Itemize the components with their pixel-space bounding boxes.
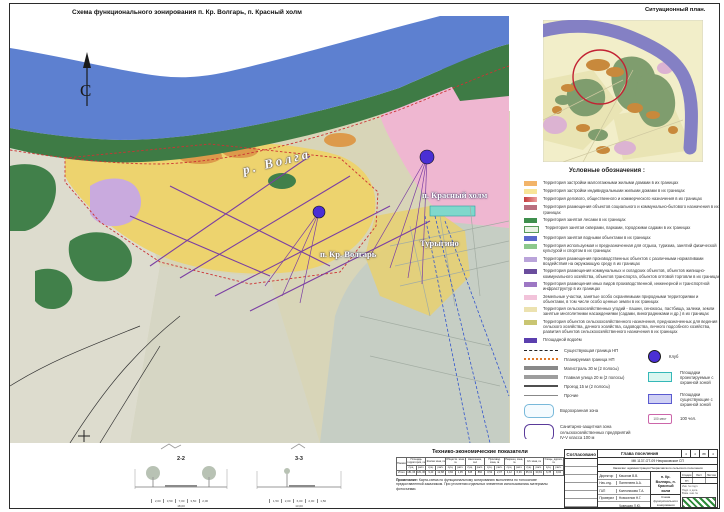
dimension-value: 2,00 xyxy=(151,499,163,503)
dimension-value: 7,00 xyxy=(175,499,187,503)
main-map: С р. Волга п. Красный холм Турыгино п. К… xyxy=(10,16,510,443)
org-line: Взам. инв. № xyxy=(682,492,716,495)
title-block-body: Директор Качалов В.В. Нач.отд. Пантелеев… xyxy=(598,472,717,508)
sheet-value xyxy=(692,478,704,483)
approval-column: Согласовано xyxy=(565,450,598,507)
legend-bottom: Существующая граница НП Планируемая гран… xyxy=(524,348,720,439)
zone-color-swatch xyxy=(524,197,537,202)
legend-point-row: Площадки существующие с охранной зоной xyxy=(648,392,720,407)
legend-point-row: Клуб xyxy=(648,350,720,363)
line-style-swatch xyxy=(524,358,558,360)
line-style-swatch xyxy=(524,350,558,351)
zone-color-swatch xyxy=(524,295,537,300)
point-label: 100 чел. xyxy=(680,416,720,421)
head-of-settlement-label: Глава поселения xyxy=(598,450,681,457)
point-label: Клуб xyxy=(669,354,720,359)
legend-zone-row: Территория занятая водными объектами в и… xyxy=(524,235,720,241)
object-name: п. Кр. Волгарь, п. Красный холм xyxy=(651,472,680,493)
teo-header-row: Показатели Площадь территории, гаЖилая з… xyxy=(397,457,564,465)
legend-area-row: Водоохранная зона xyxy=(524,404,632,418)
area-label: Водоохранная зона xyxy=(560,408,632,413)
legend-zone-row: Территория размещения иных видов произво… xyxy=(524,281,720,292)
sheets-value xyxy=(705,478,717,483)
situational-map xyxy=(543,20,703,162)
legend-line-row: Магистраль 30 м (2 полосы) xyxy=(524,366,632,371)
teo-note: Примечание: Карта-схема по функционально… xyxy=(396,478,564,491)
signature-row: ГАП Колесникова Т.А. xyxy=(598,487,650,494)
line-style-swatch xyxy=(524,395,558,396)
teo-value-cell: 860 xyxy=(475,470,485,475)
zone-color-swatch xyxy=(524,338,537,343)
line-label: Проезд 15 м (2 полосы) xyxy=(564,384,632,389)
approval-row xyxy=(565,491,597,499)
zone-label: Территория объектов сельскохозяйственног… xyxy=(543,319,720,335)
stage-value: ГП xyxy=(681,478,692,483)
teo-row-label: Итого xyxy=(397,470,407,475)
title-block-main: Глава поселения 44884 МК 1137-ОТ-09 Некр… xyxy=(598,450,717,507)
section-3-3-sketch xyxy=(249,442,349,451)
dimension-value: 2,00 xyxy=(281,499,293,503)
approved-header: Согласовано xyxy=(565,450,597,459)
legend-point-row: Площадки проектируемые с охранной зоной xyxy=(648,370,720,385)
page-number-cell: 4 xyxy=(681,450,690,457)
area-zone-swatch xyxy=(524,404,554,418)
line-label: Существующая граница НП xyxy=(564,348,632,353)
zone-label: Территория занятая лесами в их границах xyxy=(543,217,720,222)
legend-zone-row: Территория размещения объектов социально… xyxy=(524,204,720,215)
page-title: Схема функционального зонирования п. Кр.… xyxy=(72,9,302,16)
point-label: Площадки существующие с охранной зоной xyxy=(680,392,720,407)
zone-label: Территория застройки индивидуальными жил… xyxy=(543,188,720,193)
signatures-table: Директор Качалов В.В. Нач.отд. Пантелеев… xyxy=(598,472,651,508)
legend-zone-row: Территория объектов сельскохозяйственног… xyxy=(524,319,720,335)
area-label: Санитарно-защитная зона сельскохозяйстве… xyxy=(560,424,632,439)
note-label: Примечание: xyxy=(396,478,418,482)
signature-role: ГАП xyxy=(598,489,617,493)
teo-group-header: Производ. зона, га xyxy=(485,457,505,465)
legend-zone-row: Площадной водоём xyxy=(524,337,720,343)
legend-zone-row: Территория делового, общественного и ком… xyxy=(524,196,720,202)
teo-value-cell: 35,61 xyxy=(524,470,534,475)
teo-group-header: Жилая зона, га xyxy=(426,457,446,465)
legend-line-row: Проезд 15 м (2 полосы) xyxy=(524,384,632,389)
zone-label: Земельные участки, занятые особо охраняе… xyxy=(543,294,720,305)
legend-line-row: Прочие xyxy=(524,393,632,398)
zone-label: Территория делового, общественного и ком… xyxy=(543,196,720,201)
title-block-middle: п. Кр. Волгарь, п. Красный холм Схема фу… xyxy=(651,472,680,508)
zone-color-swatch xyxy=(524,282,537,287)
sheet-title: Схема функционального зонирования (совме… xyxy=(651,494,680,508)
teo-indicators: Технико-экономические показатели Показат… xyxy=(396,449,564,491)
section-trees xyxy=(146,466,216,480)
zone-label: Территория используемая и предназначенна… xyxy=(543,243,720,254)
zone-color-swatch xyxy=(524,236,537,241)
teo-value-cell: 12,88 xyxy=(436,470,446,475)
teo-table-title: Технико-экономические показатели xyxy=(396,449,564,455)
signature-role: Директор xyxy=(598,474,617,478)
approval-row xyxy=(565,467,597,475)
teo-value-cell: 181,36 xyxy=(416,470,426,475)
line-label: Магистраль 30 м (2 полосы) xyxy=(564,366,632,371)
dimension-value: 6,00 xyxy=(293,499,305,503)
situational-plan-title: Ситуационный план. xyxy=(645,7,705,13)
teo-value-cell: 181,36 xyxy=(406,470,416,475)
sheets-label: Листов xyxy=(705,472,717,477)
cross-section-2-2: 2-2 2,003,507,003,502,00 18,00 xyxy=(130,438,232,508)
teo-value-cell: 30,81 xyxy=(534,470,544,475)
section-3-3-profile xyxy=(249,463,349,493)
legend-zone-row: Территория застройки малоэтажными жилыми… xyxy=(524,180,720,186)
zone-color-swatch xyxy=(524,226,539,233)
dimension-value: 2,00 xyxy=(199,499,211,503)
zone-color-swatch xyxy=(524,205,537,210)
cross-section-3-3: 3-3 1,502,006,002,001,50 13,00 xyxy=(248,438,350,508)
teo-value-cell: 4,12 xyxy=(504,470,514,475)
legend-area-row: Санитарно-защитная зона сельскохозяйстве… xyxy=(524,424,632,439)
planned-site-cyan xyxy=(430,206,475,216)
section-id: 2-2 xyxy=(130,456,232,462)
zone-label: Территория размещения коммунальных и скл… xyxy=(543,268,720,279)
legend-lines-column: Существующая граница НП Планируемая гран… xyxy=(524,348,632,439)
teo-value-cell: 645 xyxy=(465,470,475,475)
area-zone-swatch xyxy=(524,424,554,439)
customer-line: Заказчик: администрация Некрасовского се… xyxy=(598,465,717,472)
teo-group-header: Улицы, дороги, га xyxy=(544,457,564,465)
signature-name: Колесникова Т.А. xyxy=(617,489,650,493)
legend-zone-row: Территория используемая и предназначенна… xyxy=(524,243,720,254)
zone-label: Территория размещения иных видов произво… xyxy=(543,281,720,292)
teo-value-cell: 6,78 xyxy=(544,470,554,475)
signature-row: Проверил Новоселов Н.Г. xyxy=(598,495,650,502)
approval-row xyxy=(565,475,597,483)
zone-label: Территория размещения производственных о… xyxy=(543,256,720,267)
signature-name: Новоселов Н.Г. xyxy=(617,496,650,500)
signature-name: Качалов В.В. xyxy=(617,474,650,478)
teo-group-header: Рекреац. зона, га xyxy=(504,457,524,465)
approval-row xyxy=(565,459,597,467)
section-2-2-profile xyxy=(131,463,231,493)
point-symbol-icon xyxy=(648,350,661,363)
stage-label: Стадия xyxy=(681,472,692,477)
legend-zone-row: Территория занятая лесами в их границах xyxy=(524,217,720,223)
legend-zone-row: Территория размещения производственных о… xyxy=(524,256,720,267)
dimension-value: 1,50 xyxy=(317,499,329,503)
zone-color-swatch xyxy=(524,244,537,249)
organization-logo xyxy=(682,497,716,508)
section-total: 13,00 xyxy=(248,504,350,508)
legend-zone-row: Территория сельскохозяйственных угодий -… xyxy=(524,306,720,317)
teo-value-cell: 0,84 xyxy=(446,470,456,475)
club-marker-2 xyxy=(313,206,325,218)
teo-corner-cell: Показатели xyxy=(397,457,407,470)
legend-zone-row: Территория размещения коммунальных и скл… xyxy=(524,268,720,279)
orange-zone-3 xyxy=(324,133,356,147)
title-block-right-column: Стадия Лист Листов ГП Инв. № подл.Подп. … xyxy=(680,472,717,508)
page-number-cell: 4 xyxy=(708,450,717,457)
signature-row: Нач.отд. Пантелеев А.А. xyxy=(598,480,650,487)
section-total: 18,00 xyxy=(130,504,232,508)
dimension-value: 1,50 xyxy=(269,499,281,503)
legend-title: Условные обозначения : xyxy=(524,167,690,174)
teo-value-cell: 2,07 xyxy=(495,470,505,475)
organization-cell: Инв. № подл.Подп. и датаВзам. инв. № xyxy=(681,484,717,508)
teo-group-header: Площадь территории, га xyxy=(406,457,426,465)
map-label-kr-volgar: п. Кр. Волгарь xyxy=(320,249,376,259)
zone-label: Территория застройки малоэтажными жилыми… xyxy=(543,180,720,185)
map-label-krasny-kholm: п. Красный холм xyxy=(422,190,487,200)
approval-row xyxy=(565,499,597,507)
teo-table: Показатели Площадь территории, гаЖилая з… xyxy=(396,457,564,477)
north-letter: С xyxy=(80,81,91,100)
point-symbol-icon xyxy=(648,394,672,404)
legend-line-row: Планируемая граница НП xyxy=(524,357,632,362)
legend-line-row: Существующая граница НП xyxy=(524,348,632,353)
cross-sections: 2-2 2,003,507,003,502,00 18,00 3-3 xyxy=(130,438,350,508)
plan-sheet: Схема функционального зонирования п. Кр.… xyxy=(0,0,724,512)
point-symbol-icon: 100 мест xyxy=(648,414,672,424)
line-style-swatch xyxy=(524,366,558,371)
zone-color-swatch xyxy=(524,307,537,312)
zone-color-swatch xyxy=(524,257,537,262)
production-lavender-zone xyxy=(90,179,141,227)
section-dimensions: 1,502,006,002,001,50 xyxy=(248,499,350,503)
signature-name: Пантелеев А.А. xyxy=(617,481,650,485)
page-number-cell: 4 xyxy=(690,450,699,457)
legend-panel: Условные обозначения : Территория застро… xyxy=(524,167,720,439)
approval-row xyxy=(565,483,597,491)
legend-points-column: Клуб Площадки проектируемые с охранной з… xyxy=(632,348,720,439)
page-number-cell: 88 xyxy=(699,450,708,457)
dimension-value: 3,50 xyxy=(187,499,199,503)
teo-group-header: С/х зона, га xyxy=(524,457,544,465)
teo-value-cell: 9,02 xyxy=(554,470,564,475)
line-label: Главная улица 20 м (2 полосы) xyxy=(564,375,632,380)
zone-label: Территория занятая скверами, парками, го… xyxy=(545,225,720,230)
line-label: Прочие xyxy=(564,393,632,398)
teo-value-cell: 0,52 xyxy=(485,470,495,475)
dimension-value: 3,50 xyxy=(163,499,175,503)
zone-label: Территория сельскохозяйственных угодий -… xyxy=(543,306,720,317)
section-id: 3-3 xyxy=(248,456,350,462)
map-label-turygino: Турыгино xyxy=(420,238,459,248)
signature-name: Чудецкая Л.Ю. xyxy=(617,504,650,508)
legend-line-row: Главная улица 20 м (2 полосы) xyxy=(524,375,632,380)
legend-zone-row: Земельные участки, занятые особо охраняе… xyxy=(524,294,720,305)
sheet-label: Лист xyxy=(692,472,704,477)
teo-value-cell: 6,36 xyxy=(514,470,524,475)
signature-row: Директор Качалов В.В. xyxy=(598,472,650,479)
legend-area-list: Водоохранная зона Санитарно-защитная зон… xyxy=(524,404,632,439)
line-style-swatch xyxy=(524,375,558,379)
point-symbol-icon xyxy=(648,372,672,382)
legend-point-row: 100 мест 100 чел. xyxy=(648,414,720,424)
zone-color-swatch xyxy=(524,189,537,194)
legend-zone-list: Территория застройки малоэтажными жилыми… xyxy=(524,180,720,343)
main-map-art: С xyxy=(10,16,510,443)
zone-color-swatch xyxy=(524,320,537,325)
zone-label: Площадной водоём xyxy=(543,337,720,342)
section-dimensions: 2,003,507,003,502,00 xyxy=(130,499,232,503)
org-lines: Инв. № подл.Подп. и датаВзам. инв. № xyxy=(682,485,716,495)
teo-group-header: Население, чел xyxy=(465,457,485,465)
signature-role: Нач.отд. xyxy=(598,481,617,485)
zone-color-swatch xyxy=(524,181,537,186)
teo-values-row: Итого 181,36181,369,4312,880,841,9564586… xyxy=(397,470,564,475)
section-2-2-sketch xyxy=(131,442,231,451)
legend-zone-row: Территория занятая скверами, парками, го… xyxy=(524,225,720,233)
teo-value-cell: 1,95 xyxy=(455,470,465,475)
zone-color-swatch xyxy=(524,218,537,223)
line-style-swatch xyxy=(524,385,558,388)
teo-value-cell: 9,43 xyxy=(426,470,436,475)
line-label: Планируемая граница НП xyxy=(564,357,632,362)
zone-label: Территория размещения объектов социально… xyxy=(543,204,720,215)
legend-zone-row: Территория застройки индивидуальными жил… xyxy=(524,188,720,194)
dimension-value: 2,00 xyxy=(305,499,317,503)
zone-color-swatch xyxy=(524,269,537,274)
teo-group-header: Обществ. зона, га xyxy=(446,457,466,465)
club-marker-1 xyxy=(420,150,434,164)
point-label: Площадки проектируемые с охранной зоной xyxy=(680,370,720,385)
signature-role: Проверил xyxy=(598,496,617,500)
head-row: Глава поселения 44884 xyxy=(598,450,717,458)
signature-row: Чудецкая Л.Ю. xyxy=(598,502,650,508)
title-block: Согласовано Глава поселения 44884 МК 113… xyxy=(564,449,718,508)
zone-label: Территория занятая водными объектами в и… xyxy=(543,235,720,240)
note-text: Карта-схема по функциональному зонирован… xyxy=(396,478,548,491)
document-code: МК 1137-ОТ-09 Некрасовское СП xyxy=(598,458,717,465)
legend-line-list: Существующая граница НП Планируемая гран… xyxy=(524,348,632,398)
